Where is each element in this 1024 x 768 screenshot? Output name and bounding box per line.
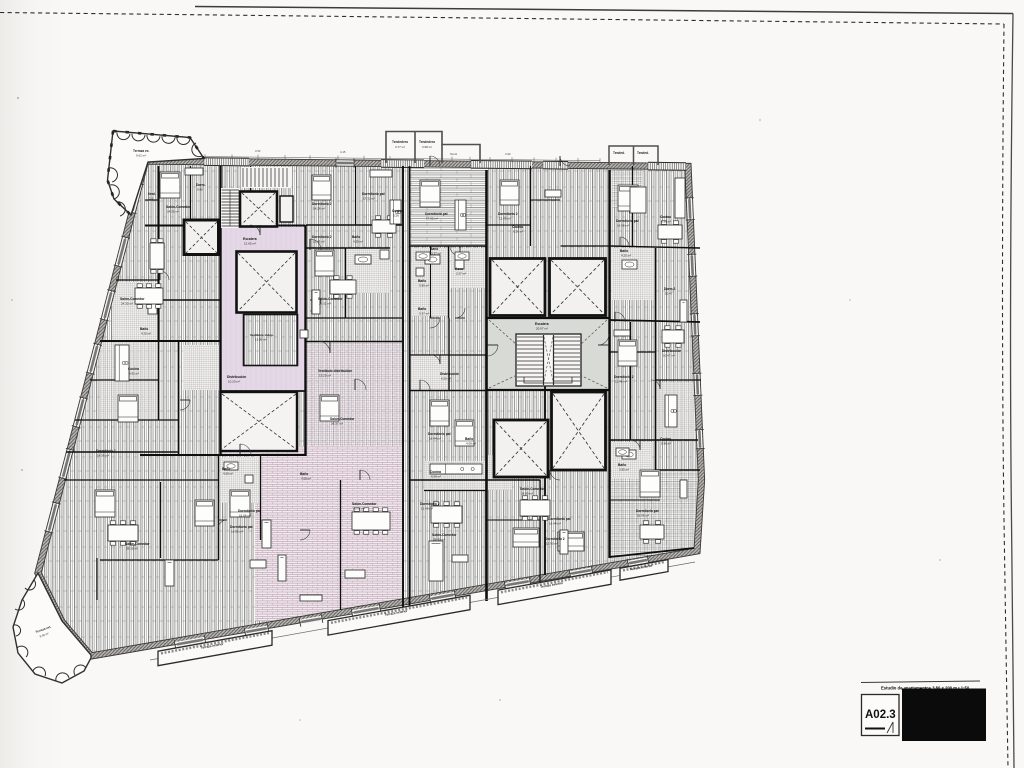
svg-text:13.80 m²: 13.80 m² [255,338,266,342]
svg-text:3.52: 3.52 [255,149,261,153]
svg-text:17.32 m²: 17.32 m² [426,216,438,220]
svg-text:17.32 m²: 17.32 m² [363,196,375,200]
svg-text:4.25 m²: 4.25 m² [353,239,363,243]
svg-text:10.47: 10.47 [665,291,673,295]
svg-text:2.27 m²: 2.27 m² [456,271,466,275]
svg-text:8.91 m²: 8.91 m² [129,371,139,375]
svg-text:4.15: 4.15 [340,150,346,154]
svg-text:12.65 m²: 12.65 m² [244,241,256,245]
svg-text:12.90 m²: 12.90 m² [546,541,558,545]
svg-text:3.95 m²: 3.95 m² [619,467,629,471]
svg-text:Tendedero: Tendedero [419,140,435,144]
svg-text:6.38 m²: 6.38 m² [661,219,671,223]
svg-text:Vestíbulo indep.: Vestíbulo indep. [250,333,274,337]
svg-text:4.20 m²: 4.20 m² [141,331,151,335]
svg-text:3.77 m²: 3.77 m² [395,145,405,149]
svg-text:4.08 m²: 4.08 m² [223,471,233,475]
svg-text:3.98 m²: 3.98 m² [422,145,432,149]
svg-text:28.37 m²: 28.37 m² [331,421,343,425]
svg-text:A02.3: A02.3 [865,709,896,721]
svg-text:11.43 m²: 11.43 m² [313,239,325,243]
svg-text:16.98 m²: 16.98 m² [617,223,629,227]
svg-text:16.06 m²: 16.06 m² [231,529,243,533]
svg-text:6.98 m²: 6.98 m² [431,474,441,478]
svg-text:4.25 m²: 4.25 m² [621,253,631,257]
svg-text:6.20 m²: 6.20 m² [441,376,451,380]
svg-text:6.26 m²: 6.26 m² [513,229,523,233]
svg-text:26.35 m²: 26.35 m² [126,546,138,550]
svg-text:12.48 m²: 12.48 m² [421,506,433,510]
svg-text:24.30 m²: 24.30 m² [121,301,133,305]
svg-text:28.40 m²: 28.40 m² [433,537,445,541]
svg-text:3.37 m²: 3.37 m² [419,311,429,315]
svg-text:4.08 m²: 4.08 m² [301,476,311,480]
svg-text:3.2: 3.2 [149,196,154,200]
svg-text:12.40 m²: 12.40 m² [499,216,511,220]
svg-text:10.47 m²: 10.47 m² [663,353,675,357]
svg-text:14.30 m²: 14.30 m² [97,453,109,457]
svg-text:20.97 m²: 20.97 m² [536,326,548,330]
svg-text:3.95 m²: 3.95 m² [419,283,429,287]
svg-text:28.40 m²: 28.40 m² [521,491,533,495]
svg-text:26.32 m²: 26.32 m² [319,301,331,305]
svg-text:13.20 m²: 13.20 m² [319,373,331,377]
svg-text:16.44 m²: 16.44 m² [549,521,561,525]
svg-text:3.37 m²: 3.37 m² [431,251,441,255]
svg-text:16.06 m²: 16.06 m² [239,513,251,517]
svg-text:4.08 m²: 4.08 m² [466,441,476,445]
svg-text:Tend.: Tend. [450,152,458,156]
svg-text:12.48 m²: 12.48 m² [615,379,627,383]
svg-text:Terraza ex.: Terraza ex. [133,149,150,153]
svg-text:16.44 m²: 16.44 m² [429,436,441,440]
svg-text:24.30 m²: 24.30 m² [167,209,179,213]
svg-text:9.80: 9.80 [197,187,203,191]
svg-text:30.97 m²: 30.97 m² [353,506,365,510]
svg-text:Tendedero: Tendedero [392,140,408,144]
svg-text:Tended.: Tended. [613,151,625,155]
svg-text:10.20 m²: 10.20 m² [228,379,240,383]
svg-text:3.90: 3.90 [505,152,511,156]
svg-text:6.26: 6.26 [393,213,399,217]
svg-text:Tended.: Tended. [637,151,649,155]
svg-text:9.62 m²: 9.62 m² [136,154,146,158]
svg-text:5.98 m²: 5.98 m² [661,441,671,445]
svg-text:16.06 m²: 16.06 m² [637,513,649,517]
svg-text:14.28 m²: 14.28 m² [313,206,325,210]
